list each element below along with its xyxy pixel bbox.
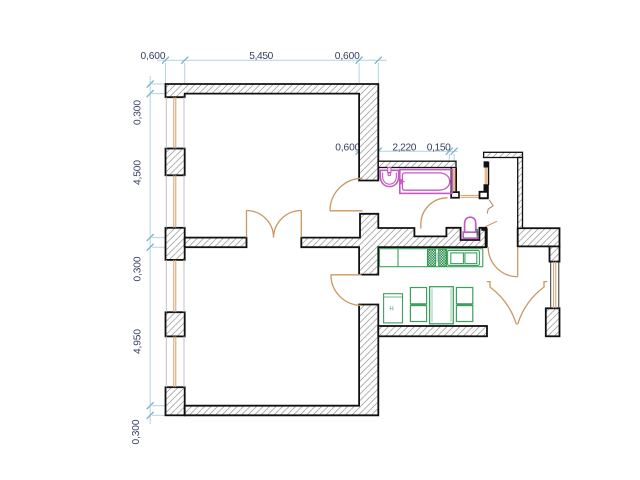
svg-text:0,300: 0,300: [133, 100, 144, 125]
svg-text:4,500: 4,500: [133, 160, 144, 185]
svg-text:0,600: 0,600: [335, 143, 360, 154]
svg-text:0,150: 0,150: [427, 143, 451, 154]
svg-text:0,300: 0,300: [131, 419, 142, 444]
svg-text:4,950: 4,950: [133, 329, 144, 354]
svg-text:2,220: 2,220: [392, 143, 416, 154]
svg-text:0,600: 0,600: [141, 51, 166, 62]
svg-text:H: H: [389, 307, 393, 313]
svg-text:5,450: 5,450: [249, 51, 273, 62]
svg-text:0,300: 0,300: [133, 256, 144, 281]
svg-text:0,600: 0,600: [335, 51, 360, 62]
